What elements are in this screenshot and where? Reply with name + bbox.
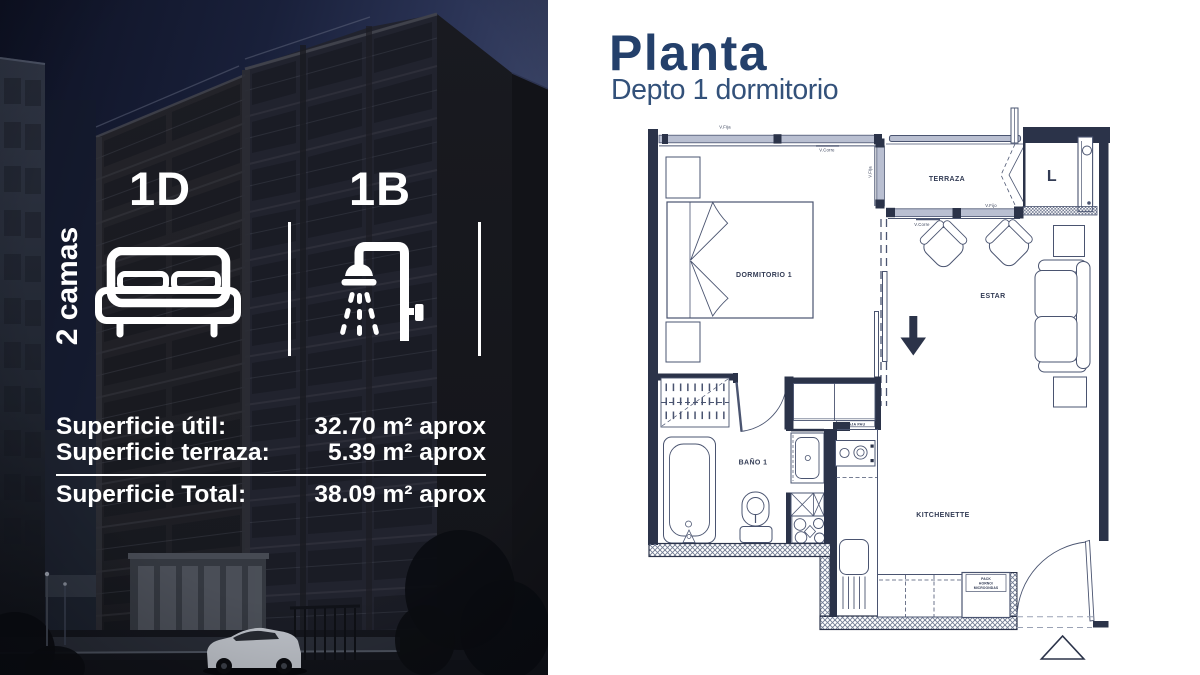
svg-text:V.Fija: V.Fija <box>868 166 873 178</box>
svg-text:ESTAR: ESTAR <box>980 293 1005 300</box>
svg-text:PACK: PACK <box>981 577 991 581</box>
svg-text:V.Fija: V.Fija <box>719 125 731 130</box>
svg-text:V.Fijo: V.Fijo <box>985 203 997 208</box>
svg-text:DORMITORIO 1: DORMITORIO 1 <box>736 272 792 279</box>
svg-text:TERRAZA: TERRAZA <box>929 176 965 183</box>
svg-text:V.Corre: V.Corre <box>914 222 930 227</box>
svg-text:BAÑO 1: BAÑO 1 <box>739 458 768 467</box>
svg-text:KITCHENETTE: KITCHENETTE <box>916 512 969 519</box>
svg-text:L: L <box>1047 168 1057 185</box>
svg-text:V.Corre: V.Corre <box>819 148 835 153</box>
svg-text:MICROONDAS: MICROONDAS <box>974 586 999 590</box>
svg-text:HORNO/: HORNO/ <box>979 582 993 586</box>
